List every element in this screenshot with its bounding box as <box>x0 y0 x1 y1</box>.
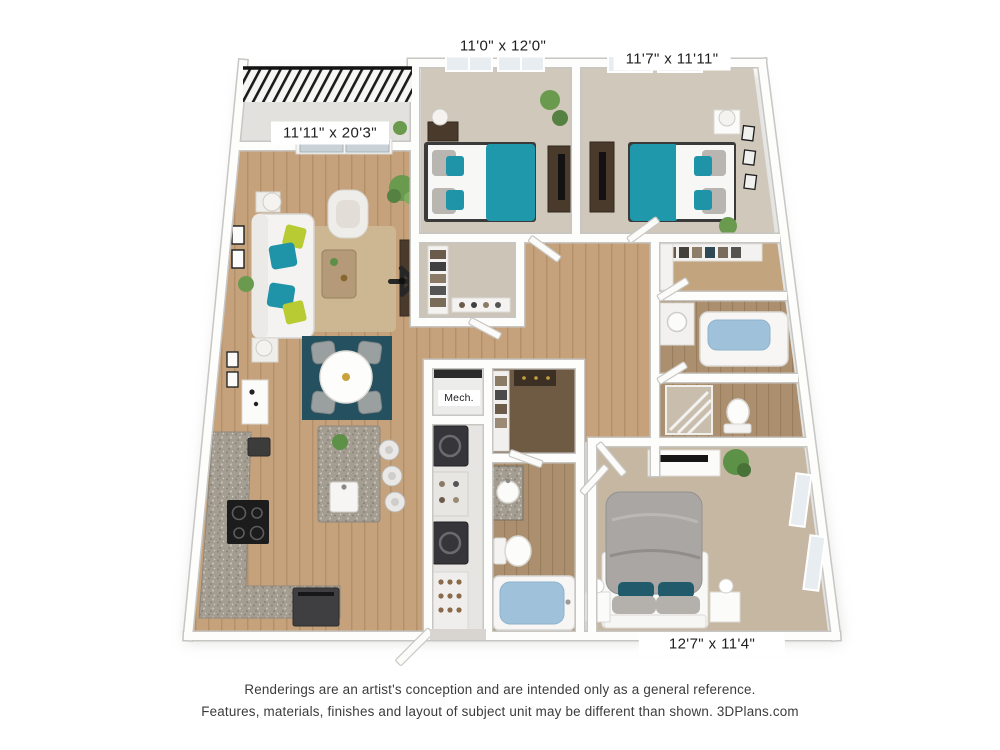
utility-shelf <box>432 472 468 516</box>
disclaimer-line-2: Features, materials, finishes and layout… <box>0 704 1000 719</box>
plant-corner <box>238 276 254 292</box>
bath2-toilet-tank <box>494 538 506 564</box>
label-mechanical-closet: Mech. <box>438 390 480 406</box>
label-master-bedroom: 12'7" x 11'4" <box>639 633 785 656</box>
bath1-tub-water <box>708 320 770 350</box>
bath1-sink <box>668 313 687 332</box>
balcony-plant <box>393 121 407 135</box>
dryer <box>432 522 468 564</box>
bed2-lamp <box>719 110 735 126</box>
bath2-tub-water <box>500 582 564 624</box>
bed2-plant <box>719 217 737 235</box>
label-living-room: 11'11" x 20'3" <box>271 122 389 145</box>
hall-wood-2 <box>415 322 580 364</box>
mech-equipment <box>434 369 482 378</box>
dining-area <box>302 336 392 420</box>
bed2-tv <box>599 152 606 200</box>
master-headboard <box>604 615 706 628</box>
console-table <box>242 380 268 424</box>
bath2-toilet <box>505 536 531 566</box>
label-bedroom-top-left: 11'0" x 12'0" <box>448 35 558 58</box>
kitchen-sink <box>248 438 270 456</box>
washer <box>432 426 468 466</box>
disclaimer-line-1: Renderings are an artist's conception an… <box>0 682 1000 697</box>
toilet-tank <box>724 424 751 433</box>
bed2-duvet <box>630 144 678 221</box>
bed1-tv <box>558 154 565 200</box>
bed1-lamp <box>432 109 448 125</box>
toilet-bowl <box>727 399 749 425</box>
entry-threshold <box>430 629 486 640</box>
label-bedroom-top-right: 11'7" x 11'11" <box>614 48 731 71</box>
balcony-railing <box>243 68 412 102</box>
floor-lamp-bottom <box>256 340 272 356</box>
floor-plan-svg <box>0 0 1000 750</box>
floor-lamp-top <box>263 193 281 211</box>
master-duvet <box>606 492 702 594</box>
master-tv <box>658 455 708 462</box>
bed1-duvet <box>486 144 535 221</box>
bath2-sink <box>497 481 519 503</box>
island-plant <box>332 434 348 450</box>
page: 11'0" x 12'0" 11'7" x 11'11" 11'11" x 20… <box>0 0 1000 750</box>
hall-wood-3 <box>580 322 655 442</box>
coffee-table <box>322 250 356 298</box>
master-nightstand-right <box>710 592 740 622</box>
